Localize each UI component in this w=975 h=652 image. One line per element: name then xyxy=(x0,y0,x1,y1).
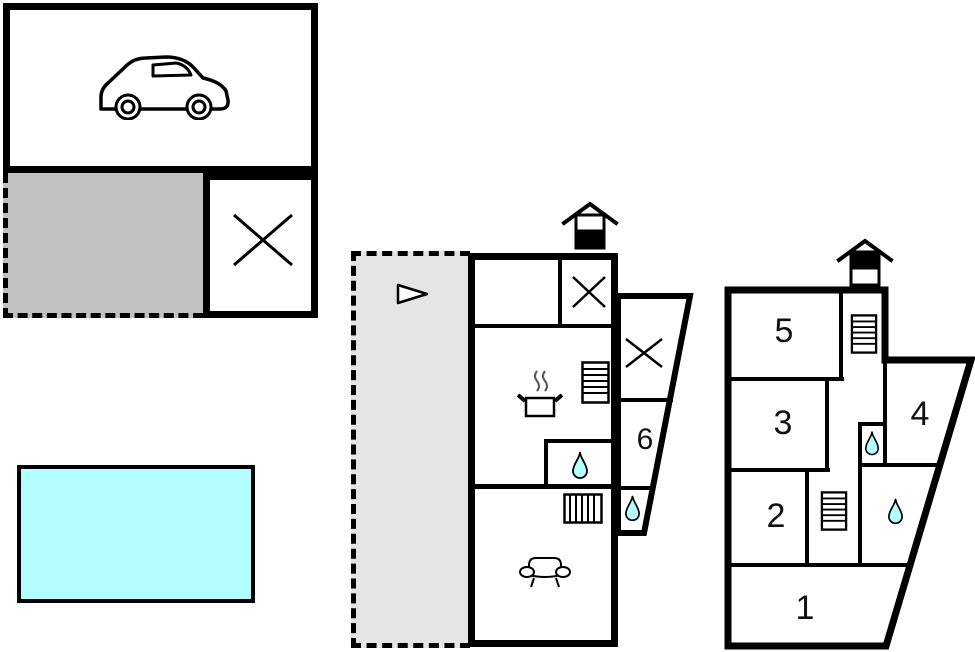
car-icon xyxy=(93,50,233,120)
radiator-icon xyxy=(563,493,603,524)
upper-floor-outline xyxy=(722,284,975,652)
room-4-label: 4 xyxy=(911,397,930,431)
wall xyxy=(544,439,548,488)
swimming-pool xyxy=(17,465,255,603)
floor-plan-canvas: 6 5 xyxy=(0,0,975,652)
stairs-icon xyxy=(850,314,878,354)
water-drop-icon xyxy=(624,493,641,523)
wall xyxy=(544,439,616,443)
water-drop-icon xyxy=(571,449,589,481)
house-ground-floor-icon xyxy=(561,201,619,253)
room-1-label: 1 xyxy=(796,591,815,625)
room-5-label: 5 xyxy=(775,314,794,348)
sofa-icon xyxy=(519,553,571,589)
wall xyxy=(470,484,616,489)
room-6-label: 6 xyxy=(637,425,654,455)
house-upper-floor-icon xyxy=(836,238,894,290)
stairs-icon xyxy=(581,361,610,404)
arrow-right-icon xyxy=(396,283,430,305)
x-mark-icon xyxy=(228,208,298,272)
ground-floor-terrace xyxy=(351,251,470,648)
wall xyxy=(470,324,616,328)
room-2-label: 2 xyxy=(767,499,786,533)
x-mark-icon xyxy=(570,274,608,310)
room-3-label: 3 xyxy=(774,406,793,440)
stairs-icon xyxy=(820,491,848,531)
cooking-pot-icon xyxy=(517,367,563,419)
wall xyxy=(558,258,562,328)
water-drop-icon xyxy=(864,429,880,457)
covered-terrace xyxy=(3,173,203,318)
water-drop-icon xyxy=(887,496,904,526)
